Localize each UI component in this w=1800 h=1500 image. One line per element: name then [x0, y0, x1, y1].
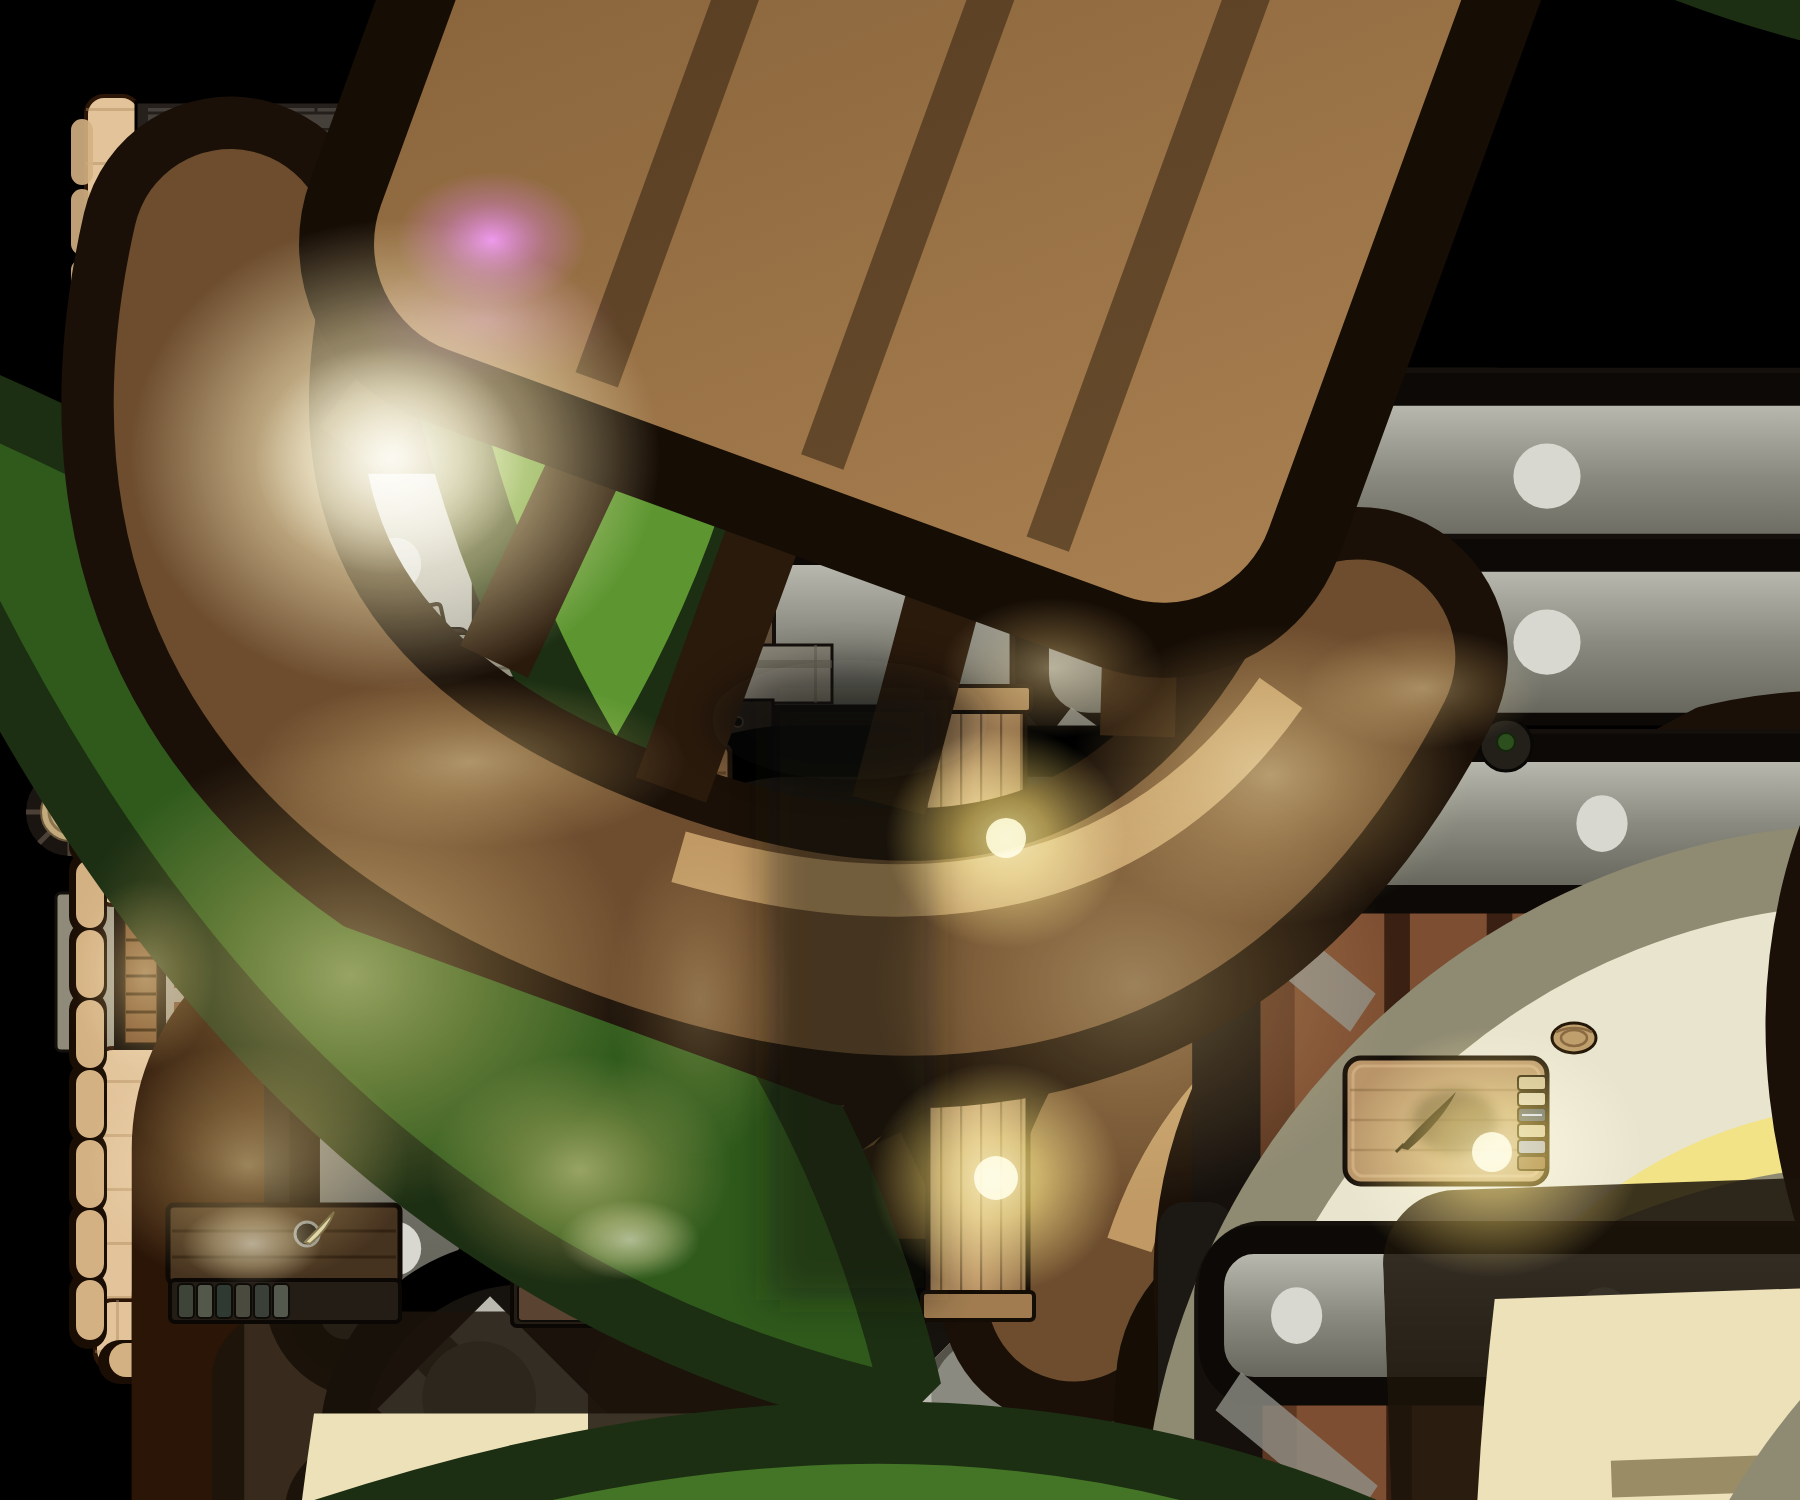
battlemap [0, 0, 1800, 1500]
bookshelf-1[interactable] [170, 1280, 400, 1322]
